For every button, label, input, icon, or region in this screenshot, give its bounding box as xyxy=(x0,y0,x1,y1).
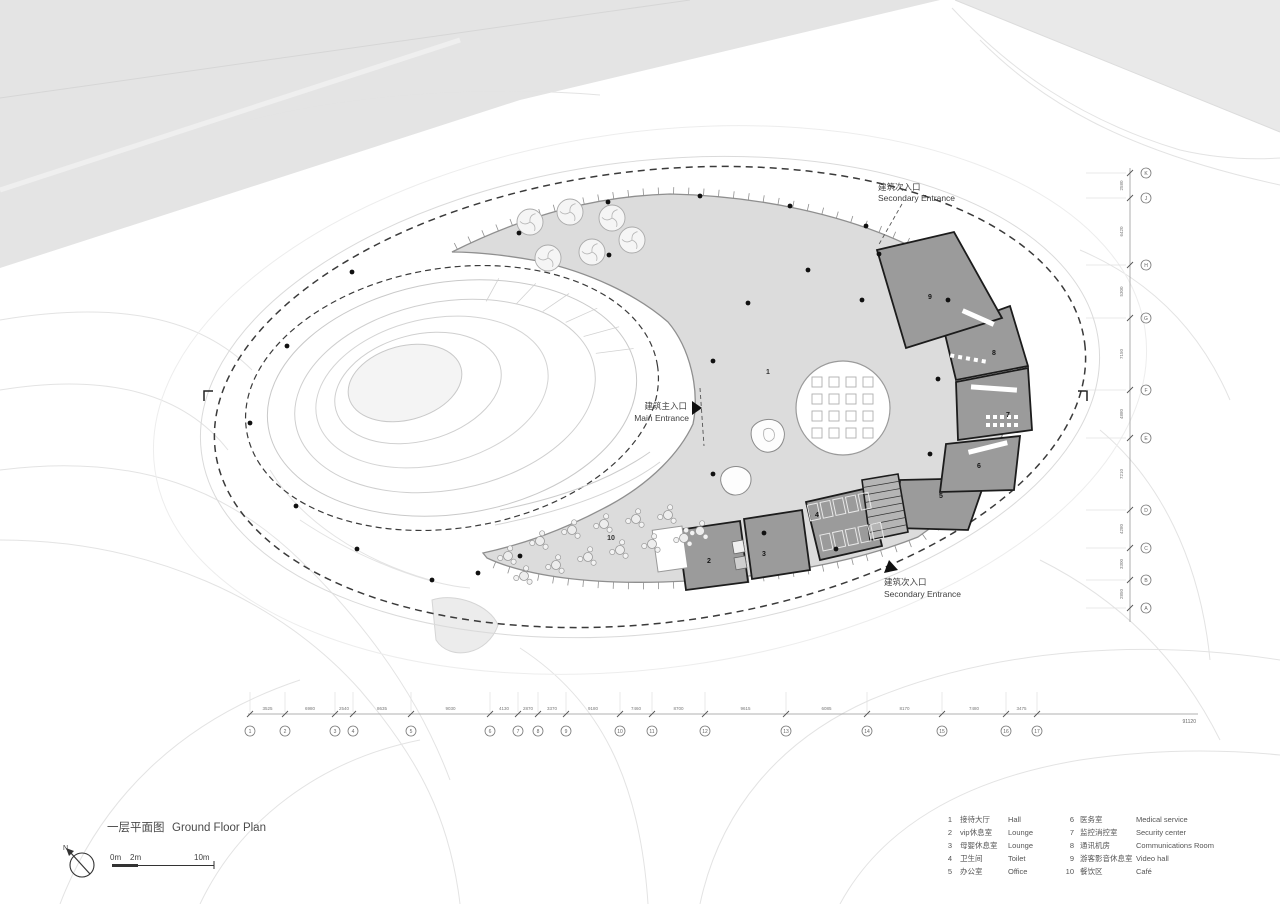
courtyard-ramp-line xyxy=(596,348,634,353)
column-dot xyxy=(294,504,299,509)
column-dot xyxy=(834,547,839,552)
skylight-cell xyxy=(829,428,839,438)
dimension-value: 4280 xyxy=(1119,523,1124,534)
chair-icon xyxy=(562,529,567,534)
chair-icon xyxy=(687,541,692,546)
console-dot xyxy=(986,423,990,427)
grid-bubble-label: 14 xyxy=(864,729,870,735)
dimension-value: 9030 xyxy=(445,706,456,711)
mullion-tick xyxy=(807,204,809,211)
mullion-tick xyxy=(895,546,897,553)
legend-cn-10: 餐饮区 xyxy=(1080,866,1103,876)
equipment-dot xyxy=(958,355,963,360)
legend-cn-9: 游客影音休息室 xyxy=(1080,853,1133,863)
equipment-dot xyxy=(981,359,986,364)
chair-icon xyxy=(511,559,516,564)
chair-icon xyxy=(658,514,663,519)
mullion-tick xyxy=(628,190,629,197)
courtyard-contour-ring xyxy=(250,254,654,541)
chair-icon xyxy=(508,546,513,551)
column-dot xyxy=(430,578,435,583)
grid-bubble-label: 2 xyxy=(284,729,287,735)
room-label-6: 6 xyxy=(977,463,981,470)
legend-no-1: 1 xyxy=(948,815,952,824)
chair-icon xyxy=(572,520,577,525)
column-dot xyxy=(806,268,811,273)
mullion-tick xyxy=(879,226,882,233)
legend-cn-3: 母婴休息室 xyxy=(960,840,998,850)
column-dot xyxy=(248,421,253,426)
courtyard-ramp-line xyxy=(584,327,619,337)
mullion-tick xyxy=(583,197,584,204)
service-block xyxy=(732,540,745,554)
chair-icon xyxy=(540,531,545,536)
dimension-value: 9615 xyxy=(740,706,751,711)
grid-bubble-label: 8 xyxy=(537,729,540,735)
dimension-value: 8170 xyxy=(899,706,910,711)
legend-en-3: Lounge xyxy=(1008,841,1033,850)
mullion-tick xyxy=(836,212,838,219)
mullion-tick xyxy=(496,224,499,230)
console-dot xyxy=(1000,415,1004,419)
chair-icon xyxy=(591,560,596,565)
room-label-5: 5 xyxy=(939,493,943,500)
chair-icon xyxy=(626,518,631,523)
room-label-1: 1 xyxy=(766,369,770,376)
mullion-tick xyxy=(643,189,644,196)
legend-cn-1: 接待大厅 xyxy=(960,814,990,824)
legend-cn-4: 卫生间 xyxy=(960,853,983,863)
dimension-value: 7150 xyxy=(1119,348,1124,359)
dimension-value: 3475 xyxy=(1016,706,1027,711)
grid-bubble-label: 3 xyxy=(334,729,337,735)
chair-icon xyxy=(639,522,644,527)
dimension-value: 9180 xyxy=(588,706,599,711)
courtyard-ramp-line xyxy=(516,283,536,304)
courtyard-inner-oculus xyxy=(339,332,470,434)
mullion-tick xyxy=(538,574,539,581)
grid-bubble-label: 12 xyxy=(702,729,708,735)
dimension-value: 7460 xyxy=(631,706,642,711)
scale-label-10m: 10m xyxy=(194,853,210,862)
grid-bubble-label: C xyxy=(1144,546,1148,552)
dimension-value: 7210 xyxy=(1119,468,1124,479)
chair-icon xyxy=(655,547,660,552)
column-dot xyxy=(518,554,523,559)
chair-icon xyxy=(594,523,599,528)
column-dot xyxy=(788,204,793,209)
column-dot xyxy=(946,298,951,303)
plan-drawing-layers: 1352526980325404863559030641307287083370… xyxy=(0,0,1280,904)
legend-cn-6: 医务室 xyxy=(1080,814,1103,824)
table-icon xyxy=(616,546,625,555)
mullion-tick xyxy=(852,558,854,565)
chair-icon xyxy=(524,566,529,571)
legend-no-3: 3 xyxy=(948,841,952,850)
table-icon xyxy=(536,537,545,546)
mullion-tick xyxy=(837,562,839,569)
skylight-cell xyxy=(863,377,873,387)
mullion-tick xyxy=(851,216,853,223)
grid-bubble-label: 17 xyxy=(1034,729,1040,735)
dimension-value: 6420 xyxy=(1119,226,1124,237)
table-icon xyxy=(600,520,609,529)
grid-bubble-label: F xyxy=(1144,388,1147,394)
mullion-tick xyxy=(553,576,554,583)
room-label-7: 7 xyxy=(1006,412,1010,419)
entrance-label-top-cn: 建筑次入口 xyxy=(878,182,921,192)
chair-icon xyxy=(623,553,628,558)
north-label: N xyxy=(63,845,68,852)
site-contour-line xyxy=(0,384,228,450)
table-icon xyxy=(568,526,577,535)
grid-bubble-label: D xyxy=(1144,508,1148,514)
chair-icon xyxy=(642,543,647,548)
entrance-label-bottom-en: Secondary Entrance xyxy=(884,589,961,599)
mullion-tick xyxy=(822,565,823,572)
mullion-tick xyxy=(778,198,779,205)
chair-icon xyxy=(668,505,673,510)
mullion-tick xyxy=(866,554,868,561)
site-contour-line xyxy=(270,470,430,580)
north-needle xyxy=(70,852,90,874)
courtyard-ramp-line xyxy=(543,294,569,312)
console-dot xyxy=(1014,423,1018,427)
legend-no-10: 10 xyxy=(1066,867,1074,876)
legend-cn-7: 监控消控室 xyxy=(1080,827,1118,837)
chair-icon xyxy=(543,544,548,549)
grid-bubble-label: 15 xyxy=(939,729,945,735)
console-dot xyxy=(1000,423,1004,427)
skylight-circle xyxy=(796,361,890,455)
legend-no-2: 2 xyxy=(948,828,952,837)
legend-en-7: Security center xyxy=(1136,828,1187,837)
mullion-tick xyxy=(909,541,911,548)
mullion-tick xyxy=(568,578,569,585)
room-3-nursing-lounge xyxy=(744,510,810,579)
mullion-tick xyxy=(763,195,764,202)
site-contour-line xyxy=(1100,430,1210,660)
dimension-total-label: 91120 xyxy=(1182,719,1196,725)
chair-icon xyxy=(559,568,564,573)
column-dot xyxy=(746,301,751,306)
skylight-cell xyxy=(846,428,856,438)
grid-bubble-label: 13 xyxy=(783,729,789,735)
column-dot xyxy=(860,298,865,303)
column-dot xyxy=(762,531,767,536)
room-label-10: 10 xyxy=(607,535,615,542)
table-icon xyxy=(696,527,705,536)
legend-en-10: Café xyxy=(1136,867,1152,876)
site-contour-line xyxy=(520,648,648,904)
column-dot xyxy=(350,270,355,275)
chair-icon xyxy=(636,509,641,514)
ground-floor-plan-sheet: 1352526980325404863559030641307287083370… xyxy=(0,0,1280,904)
dimension-value: 2540 xyxy=(339,706,350,711)
grid-bubble-label: 5 xyxy=(410,729,413,735)
dimension-value: 3525 xyxy=(262,706,273,711)
legend-en-1: Hall xyxy=(1008,815,1021,824)
chair-icon xyxy=(620,540,625,545)
equipment-dot xyxy=(966,356,971,361)
legend-en-9: Video hall xyxy=(1136,854,1169,863)
room-label-3: 3 xyxy=(762,551,766,558)
chair-icon xyxy=(498,555,503,560)
legend-en-2: Lounge xyxy=(1008,828,1033,837)
rock-sculpture xyxy=(751,419,784,452)
dimension-value: 2850 xyxy=(1119,588,1124,599)
skylight-cell xyxy=(812,394,822,404)
skylight-cell xyxy=(829,411,839,421)
mullion-tick xyxy=(553,205,555,212)
legend-cn-8: 通讯机房 xyxy=(1080,840,1110,850)
mullion-tick xyxy=(822,208,824,215)
mullion-tick xyxy=(583,580,584,587)
entrance-label-bottom-cn: 建筑次入口 xyxy=(884,577,927,587)
legend-en-4: Toilet xyxy=(1008,854,1026,863)
chair-icon xyxy=(604,514,609,519)
grid-bubble-label: 7 xyxy=(517,729,520,735)
column-dot xyxy=(877,252,882,257)
chair-icon xyxy=(546,564,551,569)
site-contour-line xyxy=(1080,250,1230,400)
skylight-cell xyxy=(829,394,839,404)
dimension-value: 3370 xyxy=(547,706,558,711)
chair-icon xyxy=(684,528,689,533)
console-dot xyxy=(1007,423,1011,427)
grid-bubble-label: 1 xyxy=(249,729,252,735)
skylight-cell xyxy=(846,377,856,387)
chair-icon xyxy=(575,533,580,538)
mullion-tick xyxy=(793,201,794,208)
column-dot xyxy=(928,452,933,457)
dimension-value: 5300 xyxy=(1119,286,1124,297)
mullion-tick xyxy=(881,550,883,557)
column-dot xyxy=(285,344,290,349)
legend-no-4: 4 xyxy=(948,854,952,863)
site-contour-line xyxy=(700,649,1280,904)
table-icon xyxy=(648,540,657,549)
table-icon xyxy=(584,553,593,562)
dimension-value: 6085 xyxy=(821,706,832,711)
dimension-value: 8700 xyxy=(673,706,684,711)
mullion-tick xyxy=(454,243,457,249)
mullion-tick xyxy=(613,192,614,199)
room-label-2: 2 xyxy=(707,558,711,565)
table-icon xyxy=(632,515,641,524)
dimension-value: 4880 xyxy=(1119,408,1124,419)
entrance-label-main-cn: 建筑主入口 xyxy=(644,401,687,411)
scale-bar-solid xyxy=(112,864,138,867)
column-dot xyxy=(476,571,481,576)
service-block xyxy=(734,556,747,570)
column-dot xyxy=(698,194,703,199)
entrance-label-top-en: Secondary Entrance xyxy=(878,193,955,203)
dimension-value: 6980 xyxy=(305,706,316,711)
dimension-value: 8635 xyxy=(377,706,388,711)
courtyard-ramp-line xyxy=(486,278,499,301)
legend-no-7: 7 xyxy=(1070,828,1074,837)
mullion-tick xyxy=(598,194,599,201)
chair-icon xyxy=(690,530,695,535)
grid-bubble-label: 16 xyxy=(1003,729,1009,735)
legend-no-6: 6 xyxy=(1070,815,1074,824)
chair-icon xyxy=(527,579,532,584)
equipment-dot xyxy=(974,358,979,363)
skylight-cell xyxy=(829,377,839,387)
chair-icon xyxy=(700,521,705,526)
mullion-tick xyxy=(893,232,896,238)
grid-bubble-label: K xyxy=(1144,171,1148,177)
console-dot xyxy=(986,415,990,419)
legend-no-9: 9 xyxy=(1070,854,1074,863)
sheet-title-en: Ground Floor Plan xyxy=(172,822,266,834)
column-dot xyxy=(355,547,360,552)
skylight-cell xyxy=(863,411,873,421)
legend-en-5: Office xyxy=(1008,867,1027,876)
column-dot xyxy=(864,224,869,229)
chair-icon xyxy=(671,518,676,523)
column-dot xyxy=(606,200,611,205)
grid-bubble-label: A xyxy=(1144,606,1148,612)
courtyard-ramp-line xyxy=(566,308,598,322)
chair-icon xyxy=(514,575,519,580)
mullion-tick xyxy=(733,191,734,198)
legend-en-8: Communications Room xyxy=(1136,841,1214,850)
dimension-value: 2870 xyxy=(523,706,534,711)
skylight-cell xyxy=(863,428,873,438)
table-icon xyxy=(664,511,673,520)
console-dot xyxy=(993,415,997,419)
column-dot xyxy=(711,359,716,364)
equipment-dot xyxy=(950,353,955,358)
scale-label-0m: 0m xyxy=(110,853,121,862)
grid-bubble-label: 10 xyxy=(617,729,623,735)
mullion-tick xyxy=(468,237,471,243)
legend-cn-2: vip休息室 xyxy=(960,827,993,837)
column-dot xyxy=(607,253,612,258)
mullion-tick xyxy=(748,193,749,200)
table-icon xyxy=(520,572,529,581)
legend-en-6: Medical service xyxy=(1136,815,1188,824)
chair-icon xyxy=(607,527,612,532)
dimension-value: 7480 xyxy=(969,706,980,711)
skylight-cell xyxy=(863,394,873,404)
column-dot xyxy=(936,377,941,382)
rock-sculpture xyxy=(721,467,751,496)
chair-icon xyxy=(703,534,708,539)
chair-icon xyxy=(578,556,583,561)
mullion-tick xyxy=(493,562,496,569)
chair-icon xyxy=(530,540,535,545)
mullion-tick xyxy=(718,190,719,197)
grid-bubble-label: G xyxy=(1144,316,1148,322)
grid-bubble-label: J xyxy=(1145,196,1148,202)
mullion-tick xyxy=(922,534,926,540)
site-pond-shape xyxy=(432,598,498,653)
mullion-tick xyxy=(510,219,512,226)
site-contour-line xyxy=(840,751,1280,904)
room-label-4: 4 xyxy=(815,512,819,519)
chair-icon xyxy=(588,547,593,552)
grid-bubble-label: H xyxy=(1144,263,1148,269)
grid-bubble-label: B xyxy=(1144,578,1148,584)
table-icon xyxy=(680,534,689,543)
site-contour-line xyxy=(0,312,252,370)
dimension-value: 4130 xyxy=(499,706,510,711)
room-label-8: 8 xyxy=(992,350,996,357)
skylight-cell xyxy=(812,411,822,421)
skylight-cell xyxy=(812,377,822,387)
grid-bubble-label: E xyxy=(1144,436,1148,442)
mullion-tick xyxy=(482,230,485,236)
skylight-cell xyxy=(846,411,856,421)
legend-no-8: 8 xyxy=(1070,841,1074,850)
scale-label-2m: 2m xyxy=(130,853,141,862)
grid-bubble-label: 6 xyxy=(489,729,492,735)
dimension-value: 3300 xyxy=(1119,558,1124,569)
grid-bubble-label: 4 xyxy=(352,729,355,735)
dimension-value: 2580 xyxy=(1119,180,1124,191)
column-dot xyxy=(711,472,716,477)
floor-plan-canvas: 1352526980325404863559030641307287083370… xyxy=(0,0,1280,904)
chair-icon xyxy=(610,549,615,554)
table-icon xyxy=(504,552,513,561)
mullion-tick xyxy=(508,567,510,574)
sheet-title-cn: 一层平面图 xyxy=(107,821,165,834)
chair-icon xyxy=(674,537,679,542)
entrance-label-main-en: Main Entrance xyxy=(634,413,689,423)
legend-cn-5: 办公室 xyxy=(960,866,983,876)
table-icon xyxy=(552,561,561,570)
grid-bubble-label: 9 xyxy=(565,729,568,735)
skylight-cell xyxy=(812,428,822,438)
room-label-9: 9 xyxy=(928,294,932,301)
skylight-cell xyxy=(846,394,856,404)
column-dot xyxy=(517,231,522,236)
site-context xyxy=(0,0,1280,904)
grid-bubble-label: 11 xyxy=(649,729,654,735)
console-dot xyxy=(993,423,997,427)
chair-icon xyxy=(556,555,561,560)
console-dot xyxy=(1014,415,1018,419)
dimension-string-bottom: 1352526980325404863559030641307287083370… xyxy=(245,692,1198,736)
chair-icon xyxy=(652,534,657,539)
legend-no-5: 5 xyxy=(948,867,952,876)
